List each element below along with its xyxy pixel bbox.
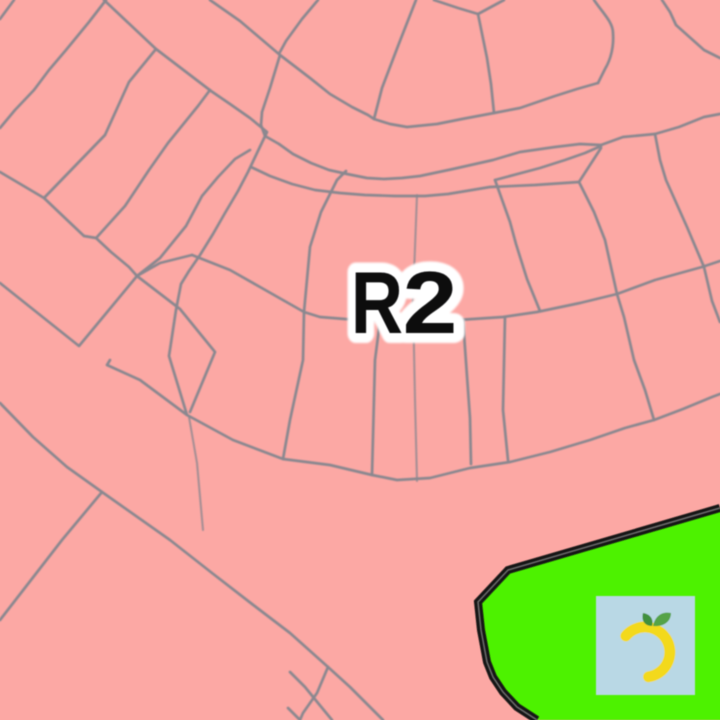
svg-text:2: 2 (403, 253, 458, 352)
svg-text:R: R (351, 254, 403, 352)
